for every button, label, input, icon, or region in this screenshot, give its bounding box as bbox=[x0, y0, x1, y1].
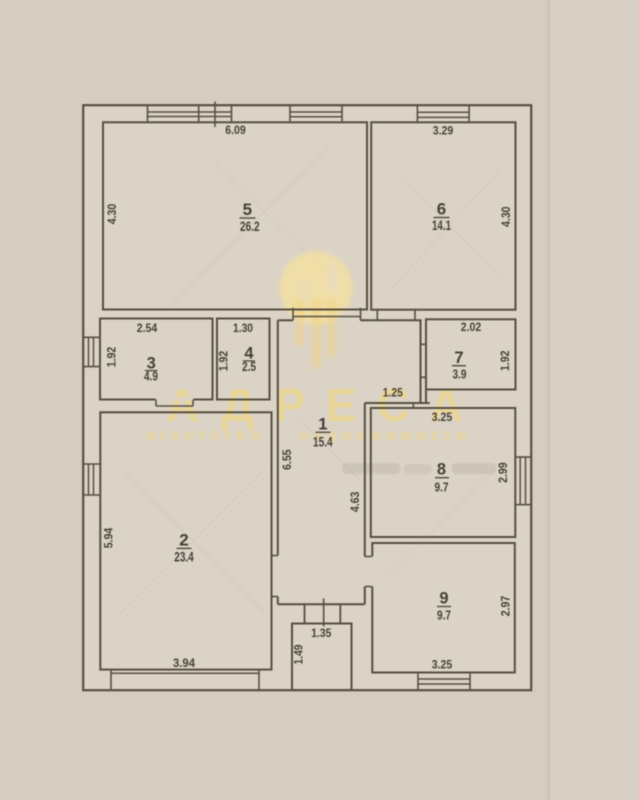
svg-text:1.25: 1.25 bbox=[383, 388, 404, 400]
svg-text:2.5: 2.5 bbox=[242, 359, 256, 374]
svg-text:4.9: 4.9 bbox=[144, 369, 158, 384]
svg-text:8: 8 bbox=[437, 461, 446, 479]
svg-text:2.54: 2.54 bbox=[137, 323, 158, 335]
svg-text:9.7: 9.7 bbox=[435, 480, 449, 495]
svg-text:4.30: 4.30 bbox=[107, 204, 119, 225]
svg-text:9.7: 9.7 bbox=[437, 608, 451, 623]
svg-text:2.99: 2.99 bbox=[498, 462, 510, 483]
svg-text:4.63: 4.63 bbox=[350, 492, 362, 513]
svg-text:1.35: 1.35 bbox=[311, 628, 332, 640]
svg-text:6.09: 6.09 bbox=[225, 125, 246, 137]
svg-text:5: 5 bbox=[243, 200, 252, 219]
svg-text:2.02: 2.02 bbox=[461, 322, 482, 334]
svg-text:3.25: 3.25 bbox=[432, 412, 453, 424]
svg-text:5.94: 5.94 bbox=[104, 527, 116, 548]
svg-text:15.4: 15.4 bbox=[313, 434, 333, 450]
svg-text:2: 2 bbox=[179, 531, 188, 550]
svg-text:2.97: 2.97 bbox=[501, 596, 513, 617]
svg-text:26.2: 26.2 bbox=[240, 218, 260, 234]
svg-text:3.9: 3.9 bbox=[453, 367, 467, 382]
svg-text:1.30: 1.30 bbox=[233, 323, 253, 335]
svg-text:14.1: 14.1 bbox=[432, 217, 451, 233]
svg-text:3.25: 3.25 bbox=[432, 660, 453, 672]
svg-text:1.49: 1.49 bbox=[293, 645, 305, 665]
svg-text:9: 9 bbox=[439, 590, 448, 608]
svg-text:23.4: 23.4 bbox=[174, 549, 194, 565]
svg-text:1.92: 1.92 bbox=[500, 351, 512, 372]
svg-text:6.55: 6.55 bbox=[282, 449, 294, 470]
svg-text:6: 6 bbox=[437, 200, 446, 219]
svg-text:4.30: 4.30 bbox=[501, 206, 513, 227]
svg-text:1.92: 1.92 bbox=[219, 351, 231, 372]
svg-text:1.92: 1.92 bbox=[107, 347, 119, 368]
svg-text:3.29: 3.29 bbox=[433, 126, 454, 138]
svg-text:1: 1 bbox=[318, 416, 327, 434]
svg-text:агентство недвижимости: агентство недвижимости bbox=[146, 427, 471, 444]
svg-text:3.94: 3.94 bbox=[173, 658, 196, 670]
svg-text:7: 7 bbox=[454, 349, 463, 367]
